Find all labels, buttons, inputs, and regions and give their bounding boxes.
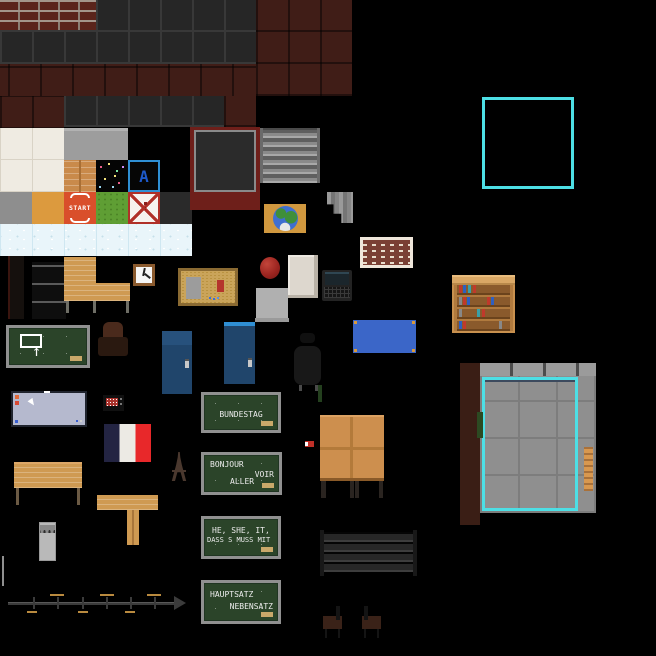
maroon-wall-tiles (224, 96, 256, 127)
bookshelf-row (457, 321, 510, 331)
bookshelf-row (457, 285, 510, 295)
cork-board-pins (209, 297, 211, 299)
room-green-object (477, 412, 483, 438)
bookshelf (452, 275, 515, 333)
bookshelf-row (457, 297, 510, 307)
blue-table-top (353, 320, 416, 353)
pedestal-machine (39, 522, 56, 561)
sparkle-night-tile (96, 160, 128, 192)
room-cyan-outline (482, 377, 578, 511)
chalkboard-arrow-board: ↑ (6, 325, 90, 368)
thin-wall-fragment (2, 556, 4, 586)
desk-leg (77, 488, 80, 505)
timeline-label-dashes-top (50, 594, 64, 596)
gray-floor-tile (64, 128, 128, 160)
timeline-arrow (8, 586, 188, 616)
eiffel-tower-icon (171, 452, 187, 481)
locker-door-2 (224, 322, 255, 384)
sign-line: HE, SHE, IT, (212, 526, 270, 535)
amber-tile (32, 192, 64, 224)
beige-panel (288, 255, 318, 298)
x-tile-glyph (144, 202, 147, 205)
red-framed-board (190, 127, 260, 210)
brick-waffle-plate (360, 237, 413, 268)
cyan-outline-square (482, 97, 574, 189)
dark-pillar (8, 256, 26, 319)
cabinet-leg (321, 481, 326, 498)
room-brown-wall (460, 363, 480, 525)
board-eraser (262, 483, 274, 488)
brick-wall-tile (0, 0, 96, 30)
letter-a-label: A (139, 167, 149, 186)
sign-bonjour: BONJOUR VOIR ALLER (201, 452, 282, 495)
room-sprite (460, 363, 596, 525)
sign-he-she-it: HE, SHE, IT, DASS S MUSS MIT (201, 516, 281, 559)
small-chair (323, 606, 342, 638)
black-shelf-unit (32, 262, 66, 319)
dark-wall-tiles (64, 96, 224, 127)
chair-leg (325, 629, 327, 638)
globe-icon (273, 206, 298, 231)
sign-line: DASS S MUSS MIT (207, 536, 270, 544)
wood-plank-tile (64, 160, 96, 192)
room-top-wall-band (480, 363, 596, 376)
icy-floor-tiles (0, 224, 192, 256)
eiffel-tower-crossbar (172, 470, 186, 472)
black-chair-front (293, 333, 322, 390)
board-eraser (261, 421, 273, 426)
grass-tile (96, 192, 128, 224)
chair-legs (299, 385, 302, 391)
board-eraser (261, 612, 273, 617)
sign-line: BUNDESTAG (204, 410, 278, 419)
start-tile-label: START (69, 204, 91, 212)
chair-leg (377, 629, 379, 638)
bookshelf-row (457, 309, 510, 319)
sign-bundestag: BUNDESTAG (201, 392, 281, 433)
board-eraser (261, 547, 273, 552)
desk-leg (16, 488, 19, 505)
sign-line: ALLER (230, 477, 254, 486)
corner-stairs (327, 192, 353, 223)
timeline-arrowhead (174, 596, 186, 610)
desk-leg (66, 301, 69, 313)
sign-line: HAUPTSATZ (210, 590, 253, 599)
room-ladder (584, 447, 593, 491)
sign-line: BONJOUR (210, 460, 244, 469)
sign-line: VOIR (255, 470, 274, 479)
t-table-top (97, 495, 158, 510)
desk-front-top (14, 462, 82, 488)
timeline-label-dashes-bottom (27, 611, 37, 613)
chalk-up-arrow: ↑ (32, 344, 41, 359)
sign-hauptsatz: HAUPTSATZ NEBENSATZ (201, 580, 281, 624)
pencil-icon (305, 441, 314, 447)
eggshell-floor-tiles (0, 128, 64, 192)
light-gray-tile (256, 288, 288, 319)
red-ball (260, 257, 280, 279)
t-table-stem (127, 510, 139, 545)
metal-shutter-block (260, 128, 320, 183)
radio-device (103, 395, 124, 411)
timeline-ticks (33, 597, 35, 609)
chair-leg (338, 629, 340, 638)
l-desk-horizontal (96, 283, 130, 301)
start-tile-bottom-bracket (70, 218, 90, 223)
sparkle-pixels (100, 166, 102, 168)
locker-door-1 (162, 331, 192, 394)
globe-on-mat (264, 204, 306, 233)
chair-top-view (98, 322, 128, 356)
pole-fragment (318, 385, 322, 402)
desk-leg (126, 301, 129, 313)
sign-line: NEBENSATZ (230, 602, 273, 611)
cabinet-leg (379, 481, 383, 498)
red-board-inner-panel (194, 130, 256, 192)
maroon-wall-tiles (0, 96, 64, 129)
start-tile-top-bracket (70, 193, 90, 198)
dark-wall-tiles (96, 0, 256, 64)
small-chair (362, 606, 381, 638)
maroon-wall-tiles (256, 0, 352, 96)
french-flag (104, 424, 151, 462)
gray-bar (255, 318, 289, 322)
maroon-wall-band (0, 64, 256, 96)
cabinet-leg (350, 481, 354, 498)
letter-a-tile: A (128, 160, 160, 192)
gray-tile (0, 192, 32, 224)
bleacher-rail (413, 530, 417, 576)
cabinet-leg (355, 481, 359, 498)
black-bleachers (320, 530, 417, 578)
board-eraser (70, 356, 82, 361)
laptop (322, 270, 352, 301)
tileset-canvas: A START ↑ (0, 0, 656, 656)
chair-leg (364, 629, 366, 638)
wood-cabinet (320, 415, 384, 481)
l-desk-vertical (64, 257, 96, 301)
wall-clock (133, 264, 155, 286)
start-tile: START (64, 192, 96, 224)
x-cross-tile (128, 192, 160, 224)
smartboard (11, 391, 87, 427)
cork-board (178, 268, 238, 306)
bleacher-bars (324, 532, 413, 572)
desk-leg (93, 301, 96, 313)
charcoal-tile (160, 192, 192, 224)
dark-wall-tiles (0, 30, 96, 64)
